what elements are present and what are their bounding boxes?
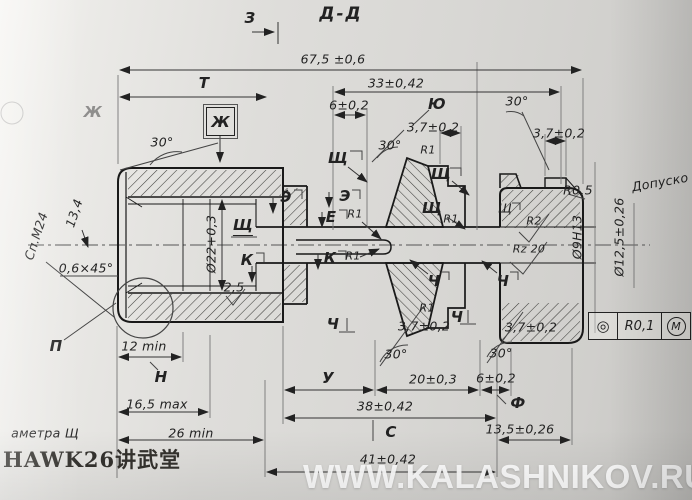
dim-6-bottom: 6±0,2 — [476, 371, 516, 386]
dim-letter-t: Т — [199, 74, 210, 92]
flag-r2: R2 — [526, 215, 541, 228]
dim-135: 13,5±0,26 — [486, 422, 555, 437]
watermark-kalashnikov: WWW.KALASHNIKOV.RU — [303, 458, 692, 496]
surface-shch-4: Щ — [422, 199, 442, 217]
note-ametra: аметра Щ — [11, 426, 79, 441]
surface-shch-2: Щ — [431, 165, 451, 183]
dim-letter-yu: Ю — [428, 95, 446, 113]
surface-ch-4: Ч — [497, 272, 509, 290]
angle-30-mid: 30° — [378, 138, 401, 153]
watermark-hawk26: HAWK26讲武堂 — [3, 444, 181, 474]
radius-05: R0,5 — [563, 183, 593, 198]
dim-20: 20±0,3 — [409, 372, 457, 387]
surface-e-1: Э — [280, 188, 291, 206]
feature-control-frame: ◎ R0,1 М — [588, 312, 691, 340]
angle-30-left: 30° — [150, 135, 173, 150]
surface-e-2: Э — [339, 187, 350, 205]
dim-6-top: 6±0,2 — [329, 98, 369, 113]
view-arrow-label: З — [245, 9, 256, 27]
tolerance-value: R0,1 — [618, 313, 662, 339]
dim-12min: 12 min — [121, 339, 166, 354]
dia-125: Ø12,5±0,26 — [612, 198, 627, 277]
dim-38: 38±0,42 — [357, 399, 413, 414]
surface-ch-2: Ч — [451, 308, 463, 326]
concentricity-icon: ◎ — [589, 313, 618, 339]
r1-k: R1 — [345, 250, 360, 263]
surface-shch-1: Щ — [328, 149, 348, 167]
dia-22: Ø22+0,3 — [204, 215, 219, 273]
dim-overall-length: 67,5 ±0,6 — [301, 52, 366, 67]
faint-zh-mark: Ж — [84, 103, 103, 121]
angle-30-bot-center: 30° — [384, 347, 407, 362]
dim-37-bot-a: 3,7±0,2 — [398, 319, 450, 334]
dim-165max: 16,5 max — [126, 397, 187, 412]
dim-37-top-a: 3,7±0,2 — [407, 120, 459, 135]
dim-37-bot-b: 3,7±0,2 — [505, 320, 557, 335]
chamfer-spec: 0,6×45° — [59, 261, 114, 276]
surface-k-2: К — [324, 249, 337, 267]
surface-k-1: К — [241, 251, 254, 269]
angle-30-top-right: 30° — [505, 94, 528, 109]
blueprint-photo: Ж З Д-Д 67,5 ±0,6 Т 33±0,42 6±0,2 Ю 30° … — [0, 0, 692, 500]
datum-box-zh: Ж — [206, 107, 235, 136]
dim-letter-s: С — [385, 423, 396, 441]
r1-bottom: R1 — [419, 302, 434, 315]
dim-37-top-b: 3,7±0,2 — [533, 126, 585, 141]
r1-top: R1 — [420, 144, 435, 157]
dim-letter-u: У — [322, 369, 334, 387]
dia-9h13: Ø9Н13 — [570, 215, 585, 260]
detail-letter-p: П — [50, 337, 63, 355]
flag-rz20: Rz 20 — [513, 243, 545, 256]
surface-ch-1: Ч — [327, 315, 339, 333]
datum-letter-zh: Ж — [211, 113, 229, 131]
roughness-25: 2,5 — [224, 280, 245, 295]
r1-ye: R1 — [347, 208, 362, 221]
material-modifier: М — [662, 313, 690, 339]
dim-26min: 26 min — [168, 426, 213, 441]
surface-shch-5: Щ — [498, 201, 512, 216]
section-title: Д-Д — [319, 4, 362, 24]
r1-shch: R1 — [443, 213, 458, 226]
dim-letter-n: Н — [155, 368, 168, 386]
surface-ye: Е — [326, 208, 337, 226]
surface-ch-3: Ч — [428, 272, 440, 290]
dim-letter-f: Ф — [510, 394, 525, 412]
modifier-m-circle: М — [667, 317, 686, 336]
angle-30-bot-right: 30° — [489, 346, 512, 361]
surface-shch-3: Щ — [233, 216, 253, 236]
dim-33: 33±0,42 — [368, 76, 424, 91]
